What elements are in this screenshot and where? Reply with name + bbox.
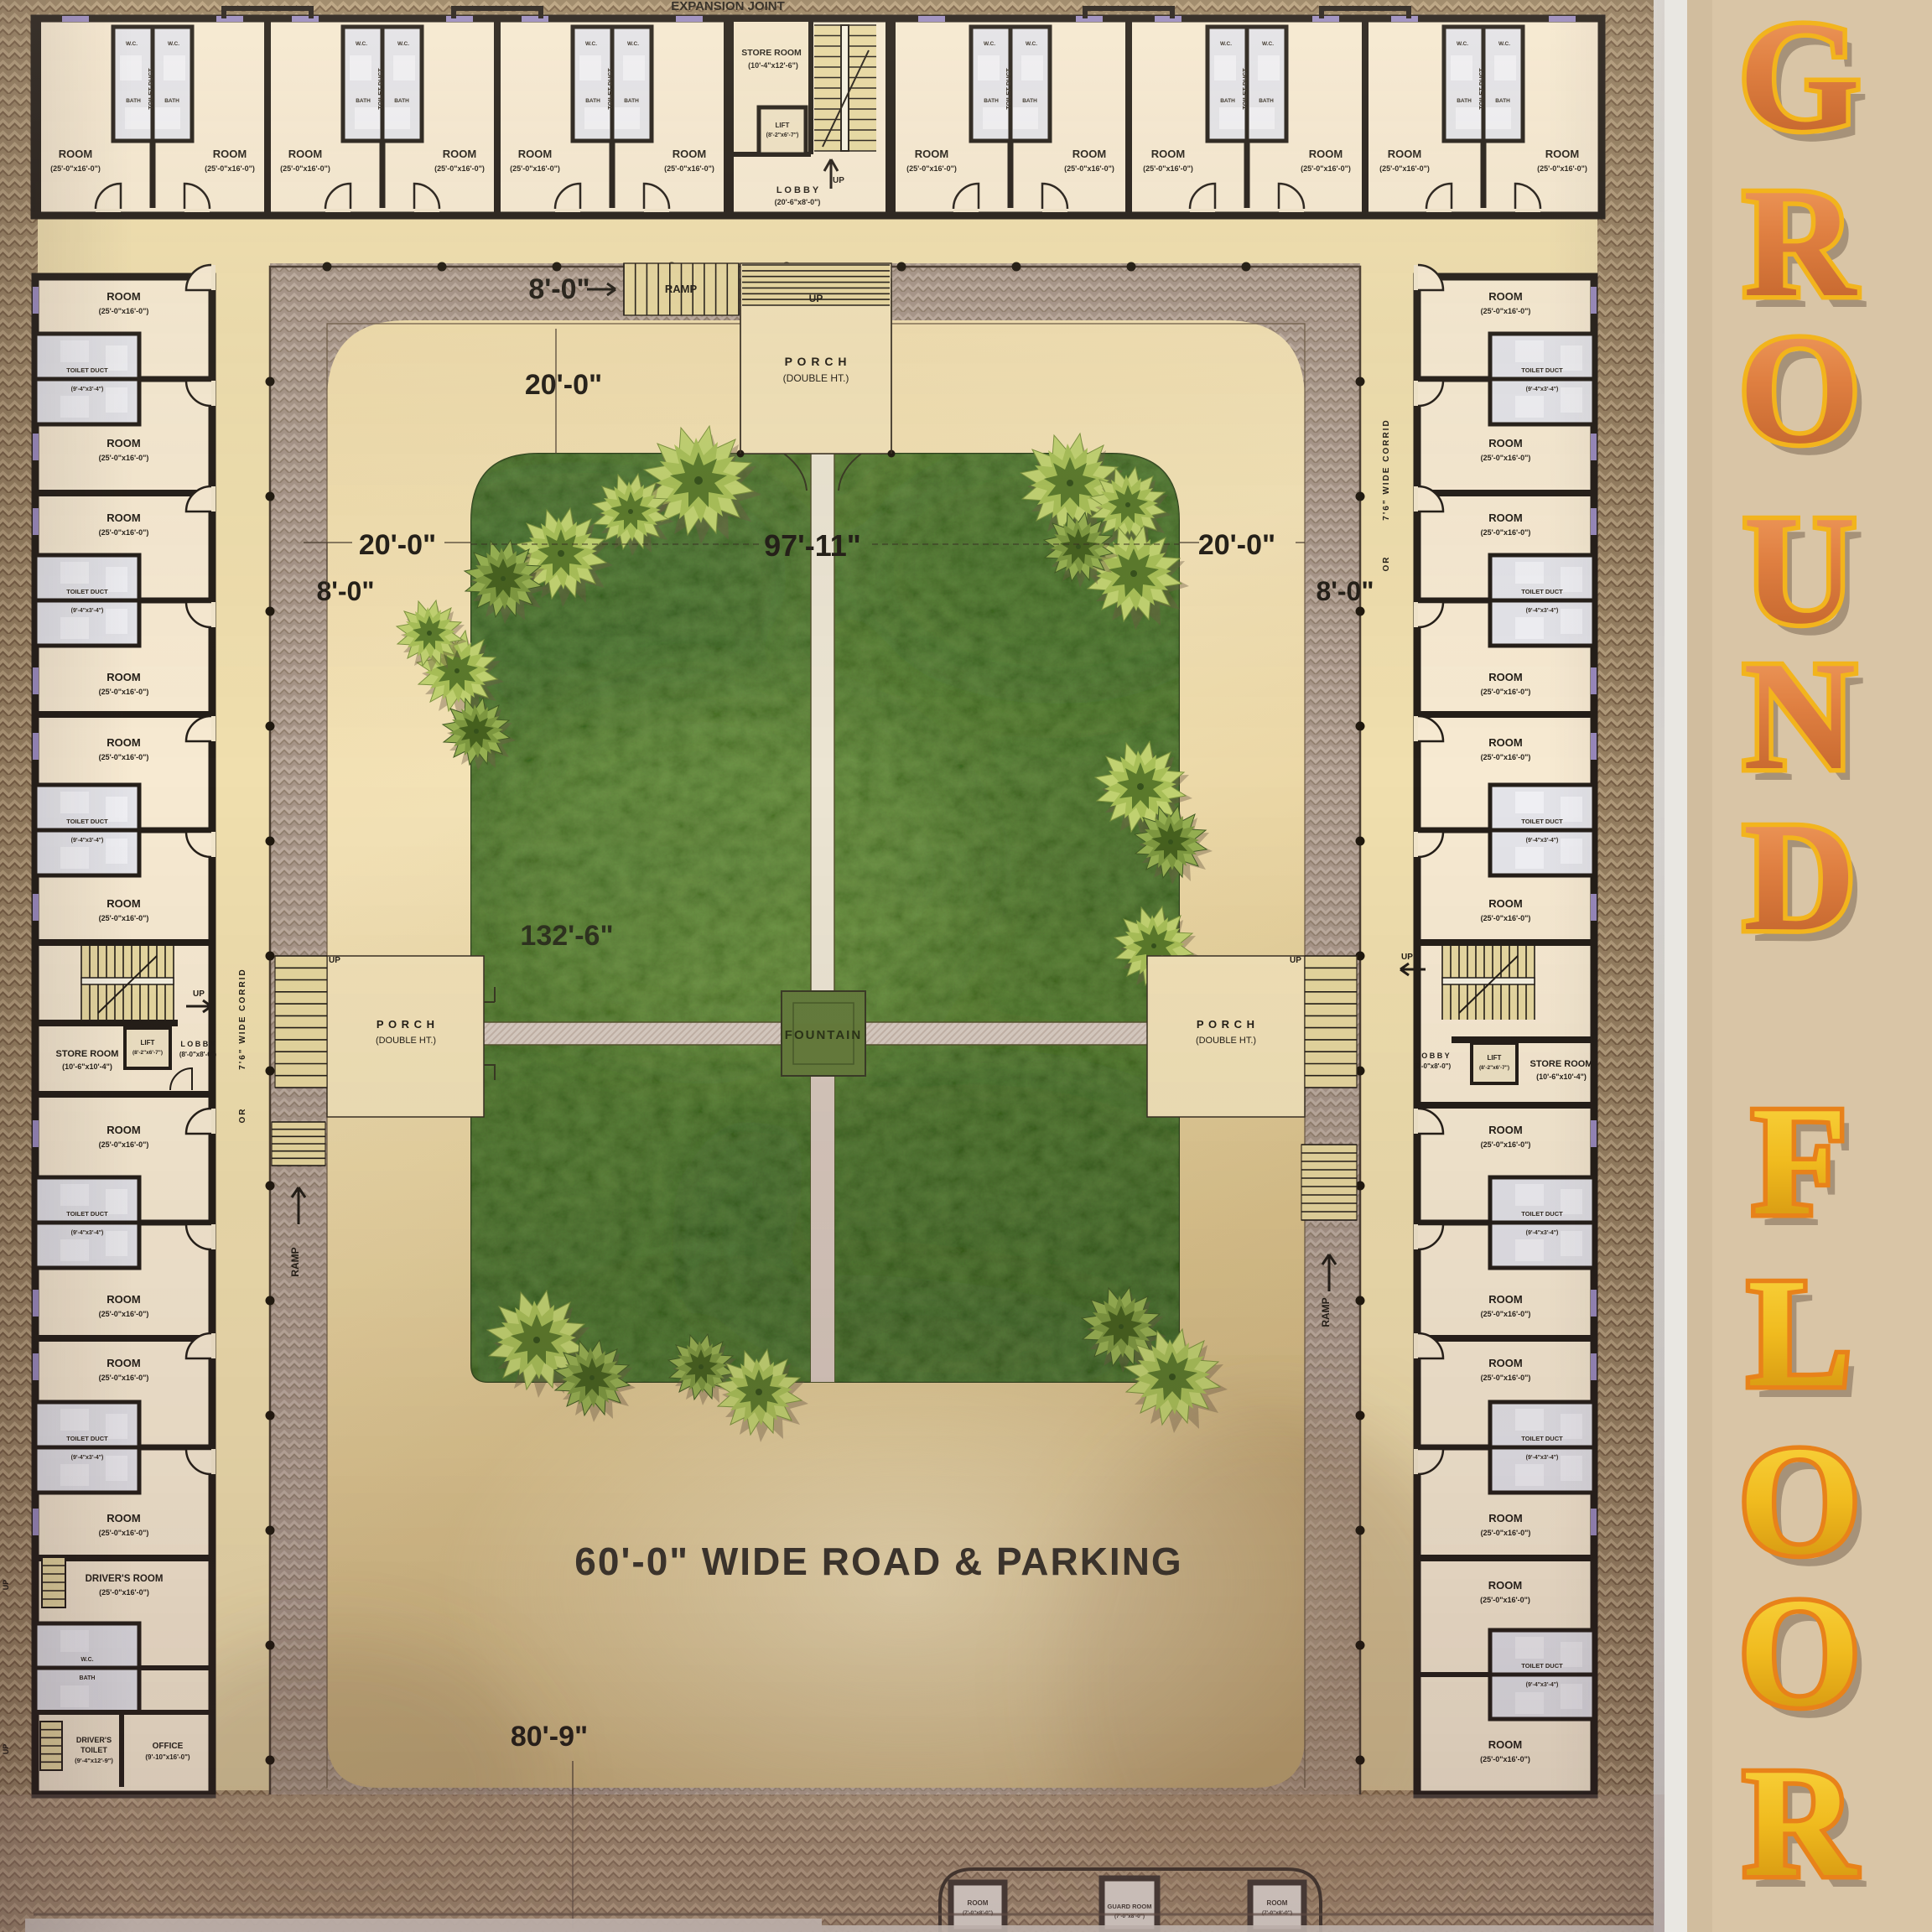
svg-text:O: O — [1739, 1566, 1861, 1739]
svg-text:F: F — [1752, 1075, 1847, 1248]
svg-text:L: L — [1748, 1247, 1851, 1420]
svg-text:G: G — [1739, 0, 1861, 163]
svg-text:N: N — [1743, 630, 1856, 802]
svg-text:D: D — [1743, 791, 1856, 963]
svg-text:R: R — [1743, 1737, 1857, 1909]
svg-text:O: O — [1739, 1415, 1861, 1587]
svg-text:O: O — [1739, 304, 1861, 476]
